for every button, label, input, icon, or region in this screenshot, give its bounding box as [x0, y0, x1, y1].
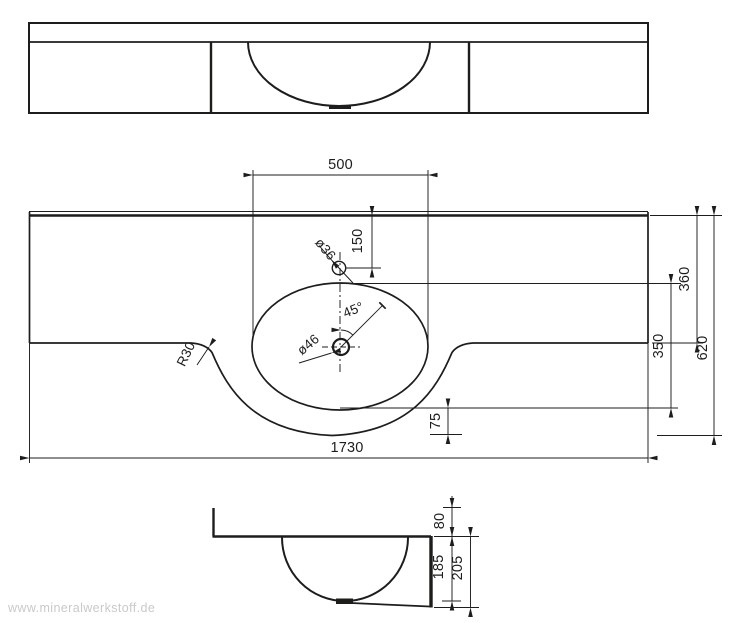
radius-leader	[197, 347, 209, 365]
dim-wing-depth-label: 360	[677, 267, 693, 292]
dim-tap-hole-diameter-label: ø36	[312, 235, 339, 263]
dim-tap-offset-label: 150	[350, 229, 366, 254]
dim-front-overhang-label: 75	[428, 413, 444, 430]
tap-hole-leader-tail	[332, 260, 354, 283]
dim-bowl-depth-label: 185	[431, 555, 447, 580]
front-outline	[29, 23, 648, 113]
angle-arc	[341, 330, 353, 335]
dim-total-depth-label: 620	[695, 336, 711, 361]
side-drain-stub	[336, 599, 353, 605]
plan-dimensions	[30, 170, 723, 463]
technical-drawing-page: 500 150 ø36 ø46 45° R30 360 350 620 75 1…	[0, 0, 749, 623]
side-section-view	[213, 508, 432, 608]
dimension-labels: 500 150 ø36 ø46 45° R30 360 350 620 75 1…	[174, 157, 711, 580]
dim-drain-angle-label: 45°	[341, 299, 366, 321]
watermark-text: www.mineralwerkstoff.de	[7, 601, 155, 615]
front-drain-mark	[329, 105, 351, 109]
front-bowl-curve	[248, 42, 430, 106]
front-elevation-view	[29, 23, 648, 113]
dim-basin-front-depth-label: 350	[651, 334, 667, 359]
dim-upstand-height-label: 80	[432, 513, 448, 530]
dim-drain-diameter-label: ø46	[294, 331, 322, 358]
dim-front-apron-height-label: 205	[450, 556, 466, 581]
side-bottom-line	[351, 603, 430, 607]
side-dimensions	[434, 496, 479, 608]
dim-basin-width-label: 500	[328, 157, 353, 173]
washbasin-drawing-svg: 500 150 ø36 ø46 45° R30 360 350 620 75 1…	[0, 0, 749, 623]
dim-total-width-label: 1730	[330, 440, 363, 456]
side-bowl-curve	[282, 538, 408, 602]
